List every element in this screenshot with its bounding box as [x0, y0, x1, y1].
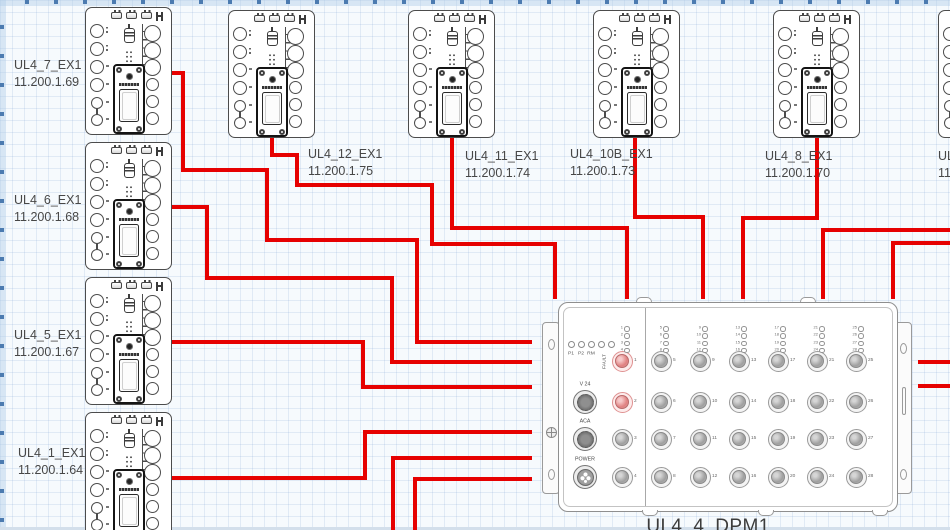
port-number: 3 — [634, 435, 637, 440]
port-mark-icon — [429, 30, 431, 37]
right-port-circle[interactable] — [289, 81, 302, 94]
left-port-circle[interactable] — [91, 502, 103, 514]
port-led-number: 14 — [732, 332, 740, 337]
brand-text — [442, 86, 462, 89]
right-port-circle[interactable] — [467, 45, 484, 62]
device-ip: 11.200.1.74 — [465, 165, 538, 182]
module-panel — [807, 92, 827, 125]
mount-hole-icon — [548, 469, 555, 480]
port-led-number: 17 — [771, 325, 779, 330]
port-led-icon — [663, 341, 669, 347]
port-led-icon — [663, 348, 669, 354]
port-mark-icon — [614, 86, 617, 88]
dpm-port-25[interactable] — [846, 351, 867, 372]
dpm-port-13[interactable] — [729, 351, 750, 372]
device-UL4_6_EX1[interactable] — [85, 142, 172, 270]
port-mark-icon — [249, 68, 252, 70]
right-port-circle[interactable] — [289, 115, 302, 128]
dpm-port-1[interactable] — [612, 351, 633, 372]
cable-offscreen-to-UL4_4_DPM1[interactable] — [415, 479, 532, 530]
left-port-circle[interactable] — [413, 45, 427, 59]
right-port-circle[interactable] — [144, 295, 161, 312]
dpm-port-9[interactable] — [690, 351, 711, 372]
dpm-port-24[interactable] — [807, 467, 828, 488]
connector-icon — [812, 31, 823, 46]
left-port-circle[interactable] — [414, 117, 426, 129]
status-led-label: RM — [587, 350, 596, 356]
dpm-port-28[interactable] — [846, 467, 867, 488]
left-port-circle[interactable] — [90, 447, 104, 461]
port-led-number: 26 — [849, 332, 857, 337]
dpm-port-19[interactable] — [768, 429, 789, 450]
port-led-icon — [702, 333, 708, 339]
dpm-port-22[interactable] — [807, 392, 828, 413]
mount-hole-icon — [548, 339, 555, 350]
aux-port-ACA[interactable] — [573, 427, 597, 451]
left-port-circle[interactable] — [943, 81, 950, 95]
dpm-port-15[interactable] — [729, 429, 750, 450]
left-port-circle[interactable] — [414, 100, 426, 112]
left-port-circle[interactable] — [91, 97, 103, 109]
port-led-icon — [780, 333, 786, 339]
screw-icon — [136, 337, 142, 343]
left-port-circle[interactable] — [90, 348, 104, 362]
screw-icon — [459, 70, 465, 76]
mount-hole-icon — [900, 469, 907, 480]
port-number: 26 — [868, 398, 873, 403]
right-port-circle[interactable] — [146, 365, 159, 378]
left-port-circle[interactable] — [779, 117, 791, 129]
right-port-circle[interactable] — [146, 348, 159, 361]
right-port-circle[interactable] — [146, 230, 159, 243]
left-port-circle[interactable] — [90, 177, 104, 191]
right-port-circle[interactable] — [144, 42, 161, 59]
dots-icon — [125, 320, 133, 334]
left-port-circle[interactable] — [90, 24, 104, 38]
port-mark-icon — [106, 27, 108, 34]
device-UL4_10B_EX1[interactable] — [593, 10, 680, 138]
right-port-circle[interactable] — [467, 28, 484, 45]
left-port-circle[interactable] — [91, 114, 103, 126]
left-port-circle[interactable] — [413, 27, 427, 41]
port-led-number: 20 — [771, 347, 779, 352]
port-mark-icon — [249, 121, 252, 123]
device-ip: 11.200.1.64 — [18, 462, 85, 479]
brand-logo-icon — [814, 76, 821, 83]
port-led-icon — [741, 348, 747, 354]
port-number: 27 — [868, 435, 873, 440]
port-mark-icon — [249, 104, 252, 106]
port-led-icon — [819, 326, 825, 332]
top-connector-icon — [111, 12, 122, 19]
left-port-circle[interactable] — [90, 429, 104, 443]
dpm-port-4[interactable] — [612, 467, 633, 488]
label-UL4_6_EX1[interactable]: UL4_6_EX111.200.1.68 — [14, 192, 81, 225]
right-port-circle[interactable] — [652, 45, 669, 62]
label-UL4_5_EX1[interactable]: UL4_5_EX111.200.1.67 — [14, 327, 81, 360]
right-port-circle[interactable] — [144, 25, 161, 42]
left-port-circle[interactable] — [90, 195, 104, 209]
left-port-circle[interactable] — [90, 78, 104, 92]
left-port-circle[interactable] — [943, 45, 950, 59]
port-mark-icon — [106, 65, 109, 67]
right-port-circle[interactable] — [287, 45, 304, 62]
left-port-circle[interactable] — [233, 81, 247, 95]
port-number: 4 — [634, 473, 637, 478]
port-number: 28 — [868, 473, 873, 478]
left-port-circle[interactable] — [233, 27, 247, 41]
connector-icon — [124, 163, 135, 178]
brand-text — [119, 353, 139, 356]
screw-icon — [259, 70, 265, 76]
dpm-port-8[interactable] — [651, 467, 672, 488]
right-port-circle[interactable] — [287, 28, 304, 45]
top-connector-icon — [814, 15, 825, 22]
port-number: 7 — [673, 435, 676, 440]
port-led-number: 16 — [732, 347, 740, 352]
dots-icon — [633, 53, 641, 67]
port-led-icon — [624, 326, 630, 332]
right-port-circle[interactable] — [146, 213, 159, 226]
dpm-port-16[interactable] — [729, 467, 750, 488]
port-led-icon — [858, 341, 864, 347]
dpm-port-5[interactable] — [651, 351, 672, 372]
port-mark-icon — [106, 218, 109, 220]
port-led-number: 6 — [654, 332, 662, 337]
port-mark-icon — [249, 30, 251, 37]
right-port-circle[interactable] — [652, 28, 669, 45]
dpm-port-26[interactable] — [846, 392, 867, 413]
right-port-circle[interactable] — [146, 95, 159, 108]
aux-port-POWER[interactable] — [573, 465, 597, 489]
dpm-port-27[interactable] — [846, 429, 867, 450]
screw-icon — [116, 126, 122, 132]
device-name: UL4_10B_EX1 — [570, 146, 653, 163]
screw-icon — [644, 129, 650, 135]
top-connector-icon — [111, 282, 122, 289]
left-port-circle[interactable] — [91, 232, 103, 244]
device-UL4_11_EX1[interactable] — [408, 10, 495, 138]
top-connector-icon — [464, 15, 475, 22]
port-led-icon — [741, 333, 747, 339]
brand-logo-icon — [126, 208, 133, 215]
left-port-circle[interactable] — [91, 519, 103, 530]
port-mark-icon — [794, 30, 796, 37]
right-port-circle[interactable] — [146, 517, 159, 530]
label-UL4_7_EX1[interactable]: UL4_7_EX111.200.1.69 — [14, 57, 81, 90]
device-name: UL4_11_EX1 — [465, 148, 538, 165]
port-led-number: 1 — [615, 325, 623, 330]
port-number: 5 — [673, 357, 676, 362]
left-port-circle[interactable] — [234, 100, 246, 112]
dpm-port-10[interactable] — [690, 392, 711, 413]
right-port-circle[interactable] — [146, 483, 159, 496]
brand-logo-icon — [126, 478, 133, 485]
port-number: 21 — [829, 357, 834, 362]
right-port-circle[interactable] — [144, 194, 161, 211]
brand-text — [119, 488, 139, 491]
left-port-circle[interactable] — [778, 45, 792, 59]
module-panel — [119, 224, 139, 257]
left-port-circle[interactable] — [599, 117, 611, 129]
device-UL4_12_EX1[interactable] — [228, 10, 315, 138]
top-connector-icon — [619, 15, 630, 22]
left-port-circle[interactable] — [944, 100, 950, 112]
label-UL[interactable]: UL11 — [938, 148, 950, 181]
screw-icon — [624, 129, 630, 135]
left-port-circle[interactable] — [943, 27, 950, 41]
aux-port-V24[interactable] — [573, 390, 597, 414]
port-mark-icon — [106, 432, 108, 439]
right-port-circle[interactable] — [144, 312, 161, 329]
mount-hole-icon — [900, 343, 907, 354]
left-port-circle[interactable] — [90, 312, 104, 326]
port-number: 13 — [751, 357, 756, 362]
device-UL[interactable] — [938, 10, 950, 138]
right-port-circle[interactable] — [832, 28, 849, 45]
dpm-port-3[interactable] — [612, 429, 633, 450]
left-port-circle[interactable] — [90, 465, 104, 479]
h-mark-icon — [844, 15, 851, 24]
right-port-circle[interactable] — [654, 98, 667, 111]
right-port-circle[interactable] — [144, 160, 161, 177]
status-led-icon — [578, 341, 585, 348]
module-face — [113, 199, 145, 269]
top-connector-icon — [126, 12, 137, 19]
right-port-circle[interactable] — [832, 62, 849, 79]
right-port-circle[interactable] — [469, 98, 482, 111]
left-port-circle[interactable] — [90, 483, 104, 497]
cable-offscreen-to-UL4_4_DPM1[interactable] — [893, 243, 950, 299]
screw-icon — [824, 70, 830, 76]
right-port-circle[interactable] — [654, 115, 667, 128]
screw-icon — [824, 129, 830, 135]
left-port-circle[interactable] — [944, 117, 950, 129]
port-led-number: 4 — [615, 347, 623, 352]
dpm-port-21[interactable] — [807, 351, 828, 372]
port-mark-icon — [106, 180, 108, 187]
right-port-circle[interactable] — [144, 59, 161, 76]
device-ip: 11.200.1.68 — [14, 209, 81, 226]
left-port-circle[interactable] — [90, 159, 104, 173]
h-mark-icon — [156, 12, 163, 21]
port-mark-icon — [106, 335, 109, 337]
port-number: 24 — [829, 473, 834, 478]
port-led-number: 11 — [693, 340, 701, 345]
dpm-port-11[interactable] — [690, 429, 711, 450]
port-led-number: 13 — [732, 325, 740, 330]
module-face — [436, 67, 468, 137]
right-port-circle[interactable] — [832, 45, 849, 62]
dpm-port-2[interactable] — [612, 392, 633, 413]
left-port-circle[interactable] — [599, 100, 611, 112]
port-mark-icon — [106, 236, 109, 238]
brand-text — [262, 86, 282, 89]
port-led-icon — [819, 348, 825, 354]
left-port-circle[interactable] — [90, 213, 104, 227]
port-number: 20 — [790, 473, 795, 478]
left-port-circle[interactable] — [778, 63, 792, 77]
left-port-circle[interactable] — [91, 367, 103, 379]
screw-icon — [136, 396, 142, 402]
right-port-circle[interactable] — [469, 81, 482, 94]
label-UL4_10B_EX1[interactable]: UL4_10B_EX111.200.1.73 — [570, 146, 653, 179]
right-port-circle[interactable] — [144, 464, 161, 481]
dpm-port-23[interactable] — [807, 429, 828, 450]
screw-icon — [136, 261, 142, 267]
dpm-port-6[interactable] — [651, 392, 672, 413]
right-port-circle[interactable] — [467, 62, 484, 79]
status-led-label: P2 — [577, 350, 586, 356]
right-port-circle[interactable] — [652, 62, 669, 79]
device-UL4_5_EX1[interactable] — [85, 277, 172, 405]
screw-icon — [136, 126, 142, 132]
top-connector-icon — [126, 282, 137, 289]
port-led-number: 19 — [771, 340, 779, 345]
port-mark-icon — [614, 68, 617, 70]
mount-slot-icon — [902, 387, 906, 415]
top-connector-icon — [254, 15, 265, 22]
right-port-circle[interactable] — [289, 98, 302, 111]
top-connector-icon — [111, 147, 122, 154]
left-port-circle[interactable] — [90, 60, 104, 74]
module-panel — [627, 92, 647, 125]
screw-icon — [116, 337, 122, 343]
right-port-circle[interactable] — [834, 115, 847, 128]
label-UL4_8_EX1[interactable]: UL4_8_EX111.200.1.70 — [765, 148, 832, 181]
label-UL4_12_EX1[interactable]: UL4_12_EX111.200.1.75 — [308, 146, 382, 179]
diagram-canvas[interactable]: UL4_7_EX111.200.1.69UL4_6_EX111.200.1.68… — [0, 0, 950, 530]
brand-logo-icon — [634, 76, 641, 83]
status-led-icon — [568, 341, 575, 348]
brand-text — [807, 86, 827, 89]
port-mark-icon — [429, 48, 431, 55]
module-panel — [119, 89, 139, 122]
port-number: 25 — [868, 357, 873, 362]
right-port-circle[interactable] — [144, 447, 161, 464]
dpm-port-18[interactable] — [768, 392, 789, 413]
dpm-port-7[interactable] — [651, 429, 672, 450]
port-led-icon — [624, 333, 630, 339]
right-port-circle[interactable] — [146, 247, 159, 260]
screw-icon — [116, 202, 122, 208]
cable-UL4_1_EX1-to-UL4_4_DPM1[interactable] — [172, 432, 532, 478]
cable-UL4_5_EX1-to-UL4_4_DPM1[interactable] — [172, 342, 532, 387]
right-port-circle[interactable] — [144, 329, 161, 346]
cable-UL4_6_EX1-to-UL4_4_DPM1[interactable] — [172, 207, 532, 362]
dpm-port-14[interactable] — [729, 392, 750, 413]
port-mark-icon — [794, 104, 797, 106]
screw-icon — [136, 472, 142, 478]
dpm-port-17[interactable] — [768, 351, 789, 372]
left-port-circle[interactable] — [778, 27, 792, 41]
left-port-circle[interactable] — [233, 45, 247, 59]
right-port-circle[interactable] — [469, 115, 482, 128]
module-face — [801, 67, 833, 137]
screw-icon — [439, 70, 445, 76]
left-port-circle[interactable] — [598, 45, 612, 59]
left-port-circle[interactable] — [90, 294, 104, 308]
port-mark-icon — [794, 86, 797, 88]
right-port-circle[interactable] — [146, 78, 159, 91]
port-mark-icon — [106, 253, 109, 255]
port-mark-icon — [106, 83, 109, 85]
left-port-circle[interactable] — [598, 81, 612, 95]
left-port-circle[interactable] — [91, 249, 103, 261]
dpm-port-12[interactable] — [690, 467, 711, 488]
left-port-circle[interactable] — [598, 63, 612, 77]
device-UL4_7_EX1[interactable] — [85, 7, 172, 135]
left-port-circle[interactable] — [233, 63, 247, 77]
right-port-circle[interactable] — [144, 430, 161, 447]
top-connector-icon — [634, 15, 645, 22]
device-ip: 11.200.1.70 — [765, 165, 832, 182]
port-mark-icon — [249, 86, 252, 88]
brand-text — [119, 83, 139, 86]
device-name: UL4_8_EX1 — [765, 148, 832, 165]
port-mark-icon — [106, 101, 109, 103]
right-port-circle[interactable] — [146, 382, 159, 395]
device-UL4_8_EX1[interactable] — [773, 10, 860, 138]
right-port-circle[interactable] — [144, 177, 161, 194]
port-led-icon — [858, 348, 864, 354]
h-mark-icon — [664, 15, 671, 24]
label-UL4_11_EX1[interactable]: UL4_11_EX111.200.1.74 — [465, 148, 538, 181]
left-port-circle[interactable] — [943, 63, 950, 77]
right-port-circle[interactable] — [146, 112, 159, 125]
right-port-circle[interactable] — [146, 500, 159, 513]
device-UL4_1_EX1[interactable] — [85, 412, 172, 530]
port-led-icon — [624, 348, 630, 354]
left-port-circle[interactable] — [779, 100, 791, 112]
top-connector-icon — [434, 15, 445, 22]
module-face — [113, 64, 145, 134]
connector-icon — [632, 31, 643, 46]
right-port-circle[interactable] — [654, 81, 667, 94]
brand-logo-icon — [449, 76, 456, 83]
port-mark-icon — [106, 450, 108, 457]
left-port-circle[interactable] — [234, 117, 246, 129]
port-mark-icon — [614, 104, 617, 106]
left-port-circle[interactable] — [413, 63, 427, 77]
device-ip: 11.200.1.69 — [14, 74, 81, 91]
dpm-title: UL4_4_DPM1 — [558, 516, 858, 530]
screw-icon — [116, 472, 122, 478]
screw-icon — [259, 129, 265, 135]
right-port-circle[interactable] — [287, 62, 304, 79]
port-mark-icon — [106, 371, 109, 373]
left-port-circle[interactable] — [413, 81, 427, 95]
screw-icon — [804, 129, 810, 135]
label-UL4_1_EX1[interactable]: UL4_1_EX111.200.1.64 — [18, 445, 85, 478]
left-port-circle[interactable] — [91, 384, 103, 396]
port-number: 16 — [751, 473, 756, 478]
port-number: 19 — [790, 435, 795, 440]
cable-offscreen-to-UL4_4_DPM1[interactable] — [823, 230, 950, 299]
port-led-number: 5 — [654, 325, 662, 330]
dots-icon — [125, 455, 133, 469]
left-port-circle[interactable] — [90, 330, 104, 344]
port-mark-icon — [614, 121, 617, 123]
port-led-number: 18 — [771, 332, 779, 337]
left-port-circle[interactable] — [90, 42, 104, 56]
right-port-circle[interactable] — [834, 98, 847, 111]
left-port-circle[interactable] — [778, 81, 792, 95]
dpm-port-20[interactable] — [768, 467, 789, 488]
port-led-number: 25 — [849, 325, 857, 330]
right-port-circle[interactable] — [834, 81, 847, 94]
left-port-circle[interactable] — [598, 27, 612, 41]
